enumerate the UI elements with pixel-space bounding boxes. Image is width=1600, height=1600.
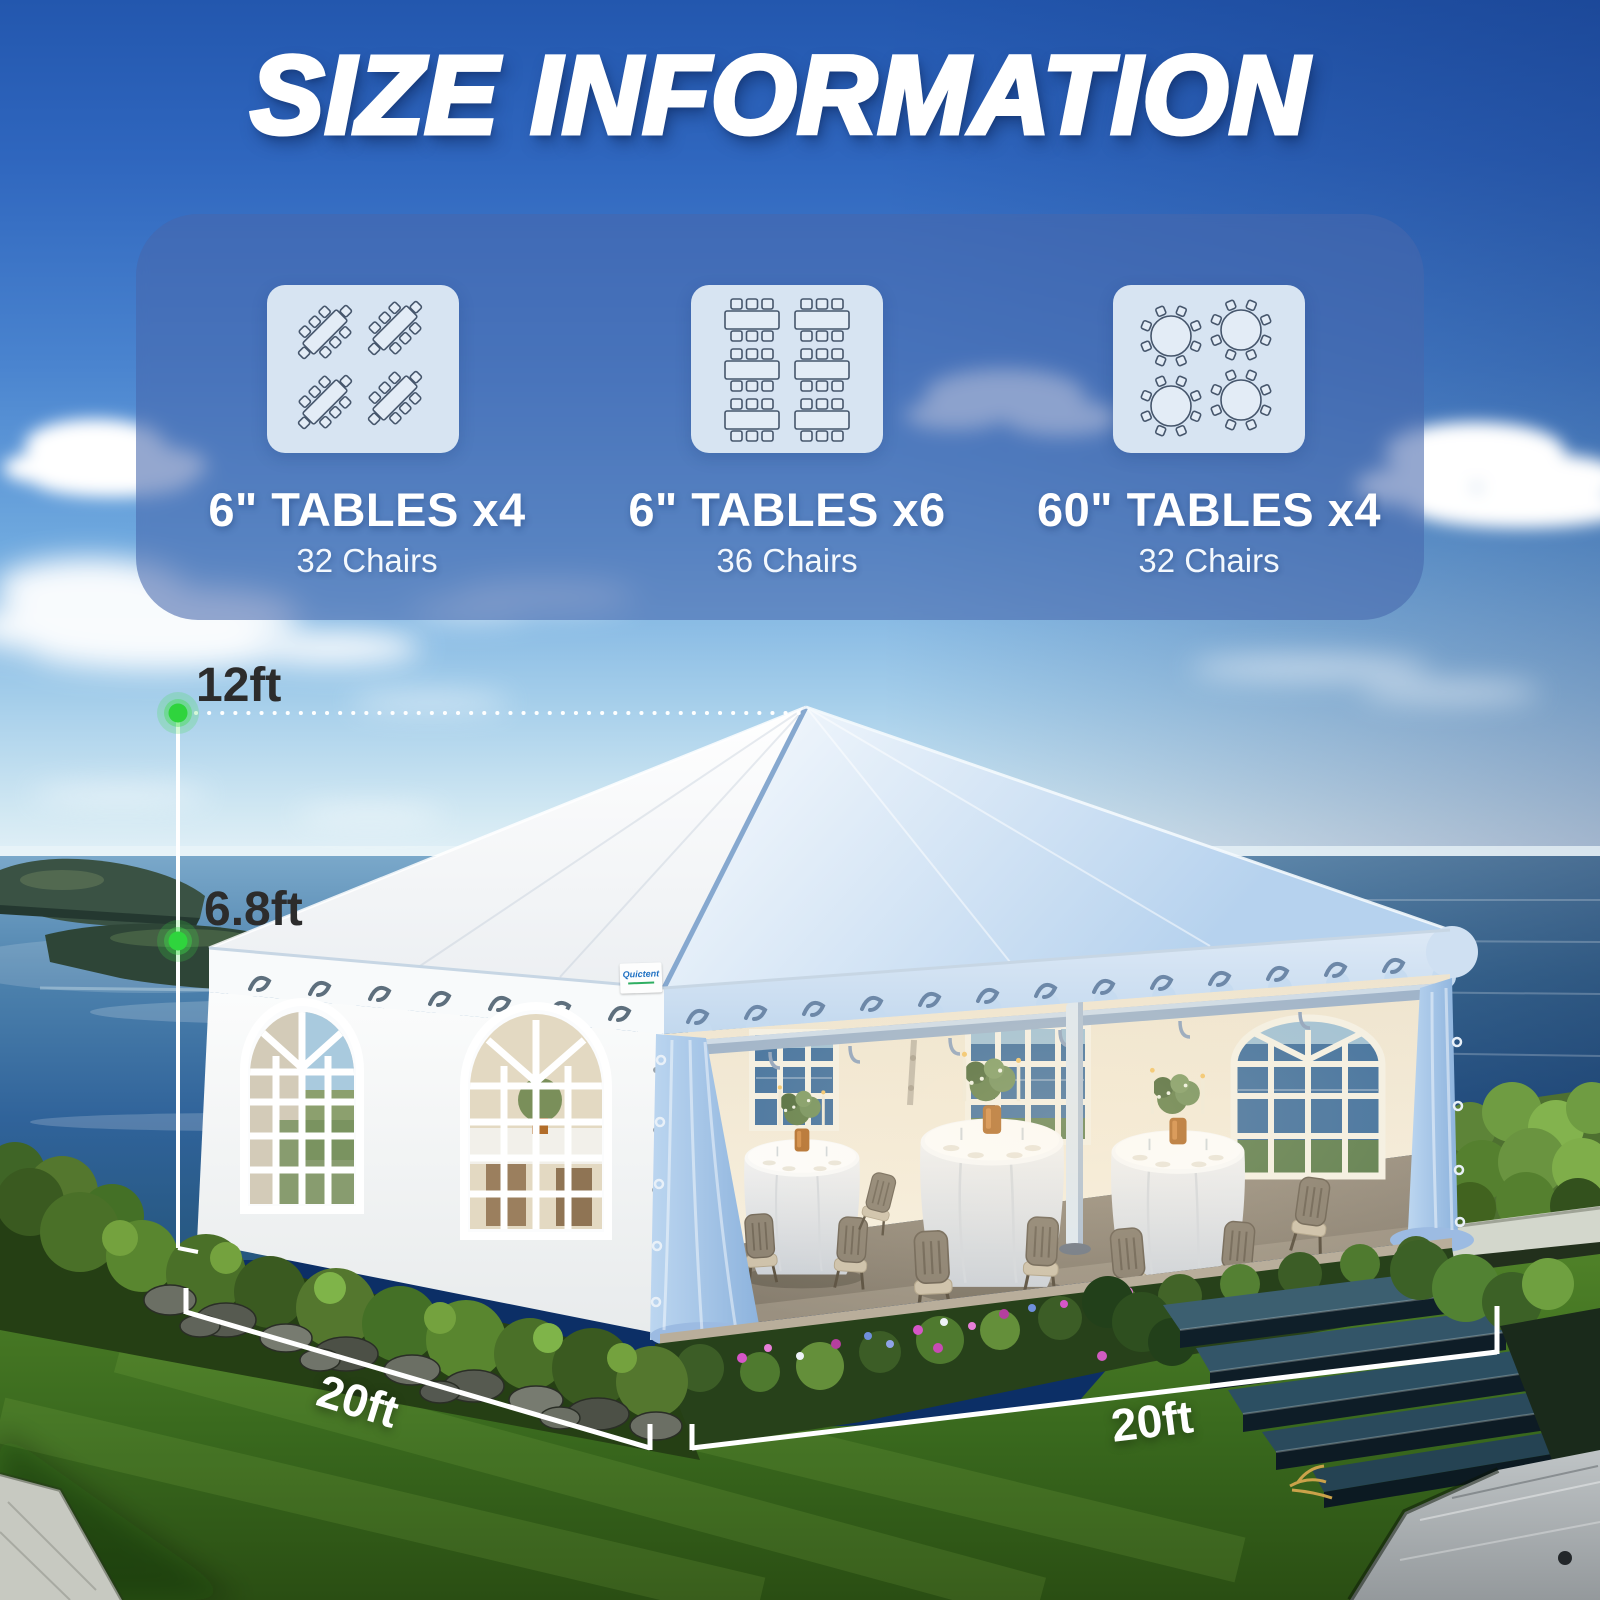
card-label-1: 6" TABLES x4 32 Chairs [147, 486, 587, 577]
brand-name: Quictent [620, 966, 662, 981]
brand-label: Quictent [619, 962, 662, 993]
brand-underline [628, 982, 654, 985]
table-label: 60" TABLES x4 [989, 486, 1429, 533]
page-title: SIZE INFORMATION [136, 38, 1424, 154]
chairs-label: 32 Chairs [147, 544, 587, 577]
floorplan-grid-tables-icon [691, 285, 883, 453]
left-wall-window-2 [464, 1006, 608, 1236]
table-label: 6" TABLES x4 [147, 486, 587, 533]
floorplan-round-tables-icon [1113, 285, 1305, 453]
card-label-2: 6" TABLES x6 36 Chairs [567, 486, 1007, 577]
chairs-label: 36 Chairs [567, 544, 1007, 577]
peak-marker [157, 692, 199, 734]
card-label-3: 60" TABLES x4 32 Chairs [989, 486, 1429, 577]
eave-height-label: 6.8ft [204, 886, 303, 934]
left-wall-window-1 [244, 1000, 360, 1210]
floorplan-diagonal-tables-icon [267, 285, 459, 453]
product-size-infographic: SIZE INFORMATION [0, 0, 1600, 1600]
floorplan-card-round-x4 [1113, 285, 1305, 453]
floorplan-card-rect-x4 [267, 285, 459, 453]
floorplan-card-rect-x6 [691, 285, 883, 453]
table-label: 6" TABLES x6 [567, 486, 1007, 533]
chairs-label: 32 Chairs [989, 544, 1429, 577]
eave-marker [157, 920, 199, 962]
peak-height-label: 12ft [196, 662, 281, 710]
